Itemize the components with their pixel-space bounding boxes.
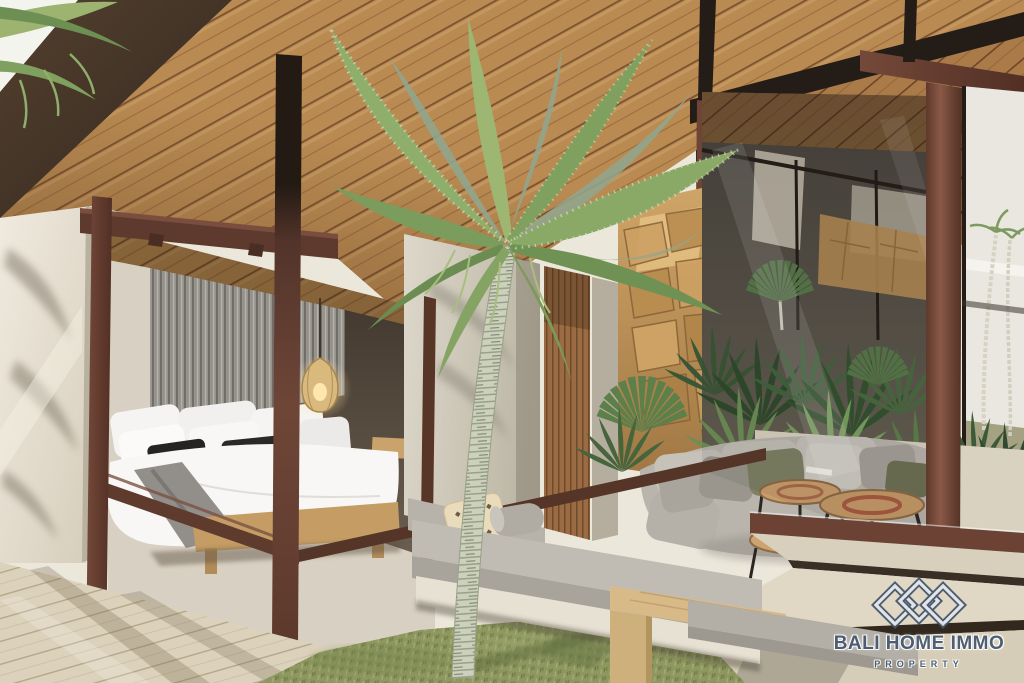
left-wall (0, 206, 95, 563)
mullion-post (926, 82, 962, 560)
corner-post (272, 54, 302, 644)
villa-render: BALI HOME IMMO PROPERTY (0, 0, 1024, 683)
villa-render-image (0, 0, 1024, 683)
